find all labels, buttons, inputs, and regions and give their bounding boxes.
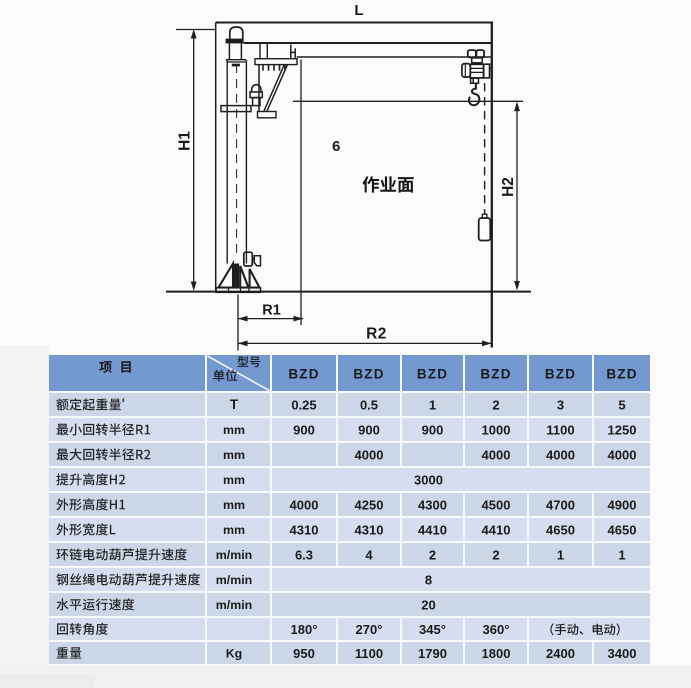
svg-text:270°: 270° [356,622,383,637]
svg-text:4000: 4000 [608,448,637,463]
svg-text:950: 950 [293,646,315,661]
svg-text:4310: 4310 [355,523,384,538]
svg-text:1000: 1000 [482,423,511,438]
svg-text:mm: mm [223,498,245,512]
svg-text:20: 20 [421,598,435,613]
svg-text:BZD: BZD [606,366,637,381]
svg-text:m/min: m/min [216,598,253,612]
svg-text:4000: 4000 [482,448,511,463]
svg-text:m/min: m/min [216,548,253,562]
svg-text:Kg: Kg [226,647,243,661]
svg-text:mm: mm [223,423,245,437]
svg-text:4: 4 [365,548,373,563]
svg-text:4300: 4300 [418,498,447,513]
svg-text:4650: 4650 [608,523,637,538]
svg-text:4500: 4500 [482,498,511,513]
svg-text:2400: 2400 [546,646,575,661]
svg-text:1100: 1100 [546,423,574,438]
svg-text:1: 1 [429,398,436,413]
svg-text:L: L [354,2,363,19]
svg-text:5: 5 [618,398,625,413]
svg-text:1: 1 [557,548,564,563]
svg-text:R1: R1 [262,303,281,319]
svg-text:BZD: BZD [288,366,319,381]
svg-text:2: 2 [429,548,436,563]
svg-text:360°: 360° [483,622,510,637]
svg-text:900: 900 [358,423,380,438]
svg-text:4250: 4250 [355,498,384,513]
svg-text:4000: 4000 [546,448,575,463]
svg-text:180°: 180° [291,622,318,637]
svg-text:BZD: BZD [353,366,384,381]
svg-text:BZD: BZD [545,366,576,381]
svg-text:3400: 3400 [608,646,637,661]
svg-text:mm: mm [223,448,245,462]
svg-text:8: 8 [425,573,432,588]
svg-text:H2: H2 [500,177,517,197]
svg-text:4000: 4000 [355,448,384,463]
svg-text:2: 2 [492,548,499,563]
svg-text:R2: R2 [366,326,387,343]
svg-text:BZD: BZD [480,366,511,381]
svg-text:900: 900 [293,423,315,438]
svg-text:mm: mm [223,473,245,487]
svg-text:4900: 4900 [608,498,637,513]
svg-text:3: 3 [557,398,564,413]
svg-text:6: 6 [332,138,340,155]
svg-text:2: 2 [492,398,499,413]
svg-text:1790: 1790 [418,646,447,661]
svg-text:BZD: BZD [417,366,448,381]
svg-text:4650: 4650 [546,523,575,538]
svg-text:4410: 4410 [482,523,511,538]
svg-text:mm: mm [223,523,245,537]
svg-text:4700: 4700 [546,498,575,513]
svg-text:H1: H1 [177,131,194,151]
svg-text:T: T [230,397,239,412]
svg-text:1: 1 [618,548,625,563]
svg-text:345°: 345° [419,622,446,637]
svg-text:4310: 4310 [290,523,319,538]
svg-text:6.3: 6.3 [295,548,313,563]
svg-text:m/min: m/min [216,573,253,587]
svg-text:4410: 4410 [418,523,447,538]
svg-text:1800: 1800 [482,646,511,661]
svg-text:900: 900 [422,423,444,438]
svg-text:0.5: 0.5 [360,398,378,413]
svg-text:0.25: 0.25 [291,398,316,413]
svg-text:4000: 4000 [290,498,319,513]
svg-text:3000: 3000 [414,473,443,488]
svg-text:1100: 1100 [355,646,383,661]
svg-text:1250: 1250 [608,423,637,438]
